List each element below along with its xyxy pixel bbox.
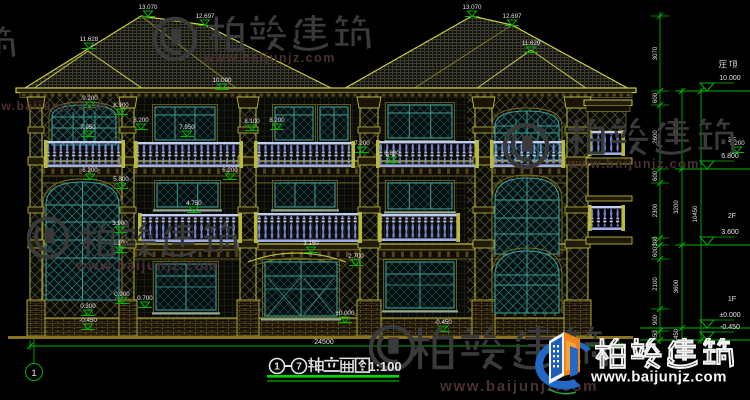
svg-text:-0.450: -0.450 (79, 317, 97, 324)
svg-text:450: 450 (674, 328, 680, 339)
svg-text:10450: 10450 (693, 205, 699, 222)
svg-text:5.800: 5.800 (113, 176, 129, 183)
svg-text:24500: 24500 (314, 339, 334, 346)
svg-text:1F: 1F (728, 296, 736, 303)
svg-text:±0.000: ±0.000 (336, 310, 355, 317)
svg-text:10.000: 10.000 (719, 75, 741, 82)
svg-text:8.200: 8.200 (269, 117, 285, 124)
svg-text:12.697: 12.697 (196, 13, 215, 20)
svg-text:3070: 3070 (653, 46, 659, 60)
svg-text:11.628: 11.628 (80, 36, 99, 43)
svg-text:2F: 2F (728, 213, 736, 220)
svg-text:3200: 3200 (674, 200, 680, 214)
svg-text:-0.450: -0.450 (720, 324, 740, 331)
svg-text:8.900: 8.900 (113, 102, 129, 109)
svg-text:www.baijunjz.com: www.baijunjz.com (567, 157, 700, 171)
svg-text:0.900: 0.900 (114, 291, 130, 298)
svg-text:11.629: 11.629 (522, 40, 541, 47)
svg-text:600: 600 (653, 170, 659, 181)
svg-text:7.200: 7.200 (354, 140, 370, 147)
svg-text:1: 1 (31, 368, 36, 379)
svg-text:www.baijunjz.com: www.baijunjz.com (75, 258, 218, 273)
svg-text:13.070: 13.070 (463, 4, 482, 11)
svg-text:600: 600 (653, 246, 659, 257)
svg-text:6.800: 6.800 (384, 150, 400, 157)
svg-text:1:100: 1:100 (368, 359, 401, 374)
svg-text:±0.000: ±0.000 (719, 312, 740, 319)
svg-text:900: 900 (653, 314, 659, 325)
svg-text:2.700: 2.700 (348, 253, 364, 260)
svg-text:3.600: 3.600 (721, 229, 739, 236)
svg-text:7: 7 (296, 362, 302, 373)
svg-text:7.950: 7.950 (179, 124, 195, 131)
svg-text:www.baijunjz.com: www.baijunjz.com (0, 99, 107, 113)
svg-text:-0.450: -0.450 (434, 319, 452, 326)
svg-text:6.200: 6.200 (222, 167, 238, 174)
svg-text:0.700: 0.700 (137, 295, 153, 302)
svg-text:1: 1 (274, 362, 280, 373)
svg-text:www.baijunjz.com: www.baijunjz.com (203, 51, 336, 65)
svg-text:2100: 2100 (653, 277, 659, 291)
svg-text:3.150: 3.150 (303, 240, 319, 247)
svg-text:www.baijunjz.com: www.baijunjz.com (590, 369, 727, 386)
svg-text:8.200: 8.200 (133, 117, 149, 124)
svg-text:4.750: 4.750 (186, 200, 202, 207)
svg-text:3600: 3600 (674, 279, 680, 293)
svg-text:10.000: 10.000 (213, 77, 232, 84)
svg-text:8.100: 8.100 (244, 118, 260, 125)
svg-text:6.200: 6.200 (82, 167, 98, 174)
svg-text:300: 300 (653, 236, 659, 247)
svg-text:2300: 2300 (653, 203, 659, 217)
svg-text:6.800: 6.800 (721, 153, 739, 160)
svg-text:0.300: 0.300 (80, 303, 96, 310)
svg-text:13.070: 13.070 (139, 4, 158, 11)
svg-text:7.950: 7.950 (80, 124, 96, 131)
svg-text:600: 600 (653, 92, 659, 103)
svg-text:12.697: 12.697 (503, 13, 522, 20)
